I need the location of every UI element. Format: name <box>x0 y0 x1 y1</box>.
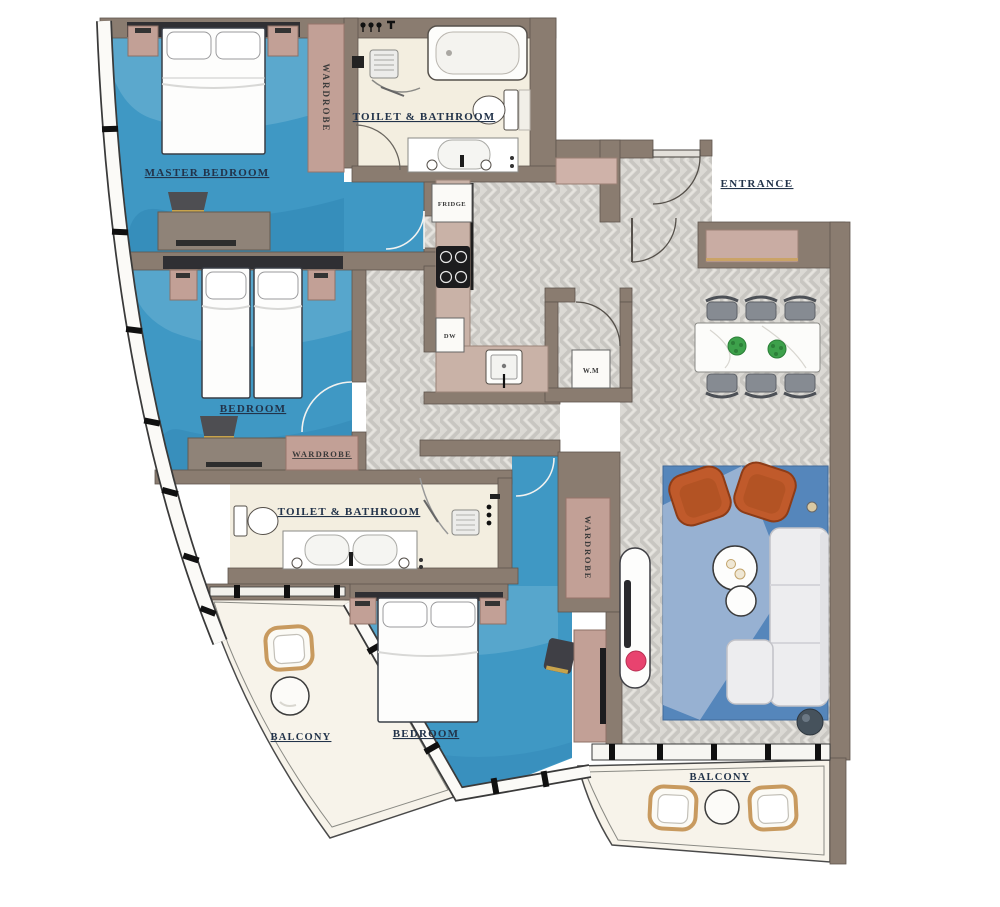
entry-console <box>706 230 798 262</box>
bathroom-top-label: TOILET & BATHROOM <box>353 111 496 123</box>
wardrobe-mid: WARDROBE <box>286 436 358 470</box>
entrance-door-leaf <box>653 150 700 157</box>
fridge-icon: FRIDGE <box>432 184 472 222</box>
wardrobe-master-label: WARDROBE <box>321 63 331 132</box>
media-console <box>620 548 650 688</box>
master-bedroom-label: MASTER BEDROOM <box>145 167 270 179</box>
entrance-label: ENTRANCE <box>721 178 794 190</box>
toilet-icon <box>234 506 278 536</box>
tv-console <box>574 630 606 742</box>
balcony-left-label: BALCONY <box>271 732 332 743</box>
pouf <box>797 709 823 735</box>
washing-machine-label: W.M <box>583 367 599 375</box>
window-band-living <box>592 744 830 760</box>
wardrobe-living: WARDROBE <box>566 498 610 598</box>
wardrobe-master: WARDROBE <box>308 24 344 172</box>
vanity-sink-icon <box>283 531 423 569</box>
fridge-label: FRIDGE <box>438 201 466 208</box>
double-bed <box>162 28 265 154</box>
console-trim <box>706 258 798 261</box>
bathtub-icon <box>428 26 527 80</box>
wardrobe-mid-label: WARDROBE <box>292 449 352 459</box>
bathroom-mid-label: TOILET & BATHROOM <box>278 506 421 518</box>
double-bed <box>378 598 478 722</box>
floor-plan-page: MASTER BEDROOM WARDROBE <box>0 0 1000 907</box>
cooktop-icon <box>436 246 470 288</box>
decor-bowl <box>626 651 646 671</box>
rattan-chair <box>265 625 314 670</box>
rattan-chair <box>749 786 797 830</box>
hall-cabinet <box>556 158 617 184</box>
balcony-table <box>705 790 739 824</box>
dishwasher-icon: DW <box>436 318 464 352</box>
dining-area <box>695 297 820 397</box>
twin-bed <box>254 268 302 398</box>
balcony-window-wall <box>210 585 345 598</box>
twin-bed <box>202 268 250 398</box>
bedroom-2-label: BEDROOM <box>220 403 286 415</box>
vanity-sink-icon <box>408 138 518 172</box>
kitchen-sink-icon <box>486 350 522 388</box>
plant-icon <box>768 340 786 358</box>
bedroom-3-label: BEDROOM <box>393 728 459 740</box>
decor-item <box>807 502 817 512</box>
plant-icon <box>728 337 746 355</box>
dishwasher-label: DW <box>444 333 456 340</box>
floor-plan-svg: MASTER BEDROOM WARDROBE <box>0 0 1000 907</box>
wardrobe-living-label: WARDROBE <box>583 516 593 580</box>
balcony-table <box>271 677 309 715</box>
dining-table <box>695 323 820 372</box>
balcony-right-label: BALCONY <box>690 772 751 783</box>
rattan-chair <box>649 786 697 830</box>
